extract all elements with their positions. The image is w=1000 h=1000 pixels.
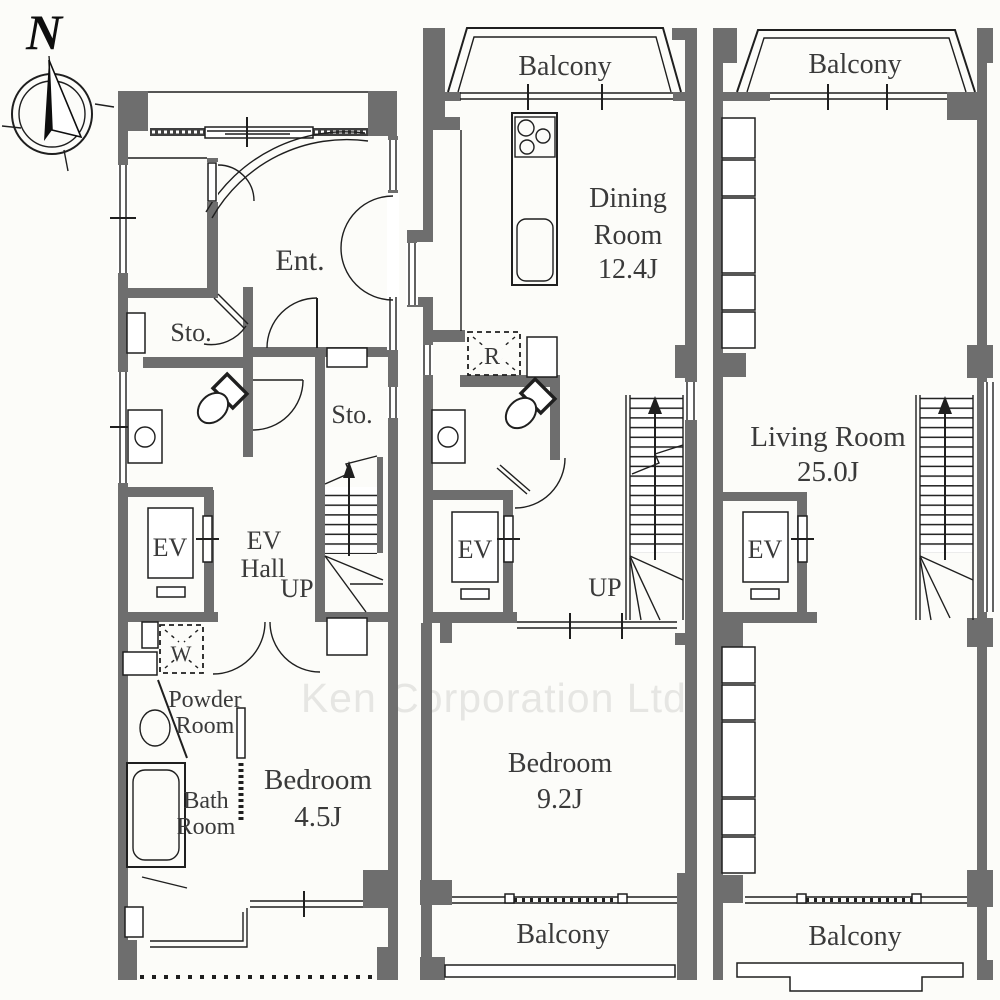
room-label-dining-2: Room — [594, 220, 663, 251]
room-label-powder-2: Room — [176, 713, 235, 739]
room-label-bath-2: Room — [177, 814, 236, 840]
floor-plan-svg: Ken Corporation Ltd. N — [0, 0, 1000, 1000]
room-label-balcony-bottom-2f: Balcony — [516, 919, 609, 950]
room-label-balcony-top-3f: Balcony — [808, 49, 901, 80]
room-label-entrance: Ent. — [275, 244, 324, 277]
washbasin-icon — [432, 410, 465, 463]
closet-icon — [527, 337, 557, 377]
label-stairs-up: UP — [280, 574, 313, 603]
watermark-text: Ken Corporation Ltd. — [301, 675, 699, 721]
room-label-storage-a: Sto. — [170, 318, 211, 347]
room-label-ev-hall-2: Hall — [241, 554, 286, 583]
room-label-powder-1: Powder — [168, 687, 241, 713]
room-label-bedroom2-1: Bedroom — [508, 748, 612, 779]
room-label-balcony-bottom-3f: Balcony — [808, 921, 901, 952]
closet-icon — [327, 348, 367, 367]
floor3-closet-column-upper — [722, 118, 755, 348]
room-label-dining-3: 12.4J — [598, 254, 658, 285]
floor-plan-page: Ken Corporation Ltd. N — [0, 0, 1000, 1000]
room-label-balcony-top-2f: Balcony — [518, 51, 611, 82]
room-label-living-2: 25.0J — [797, 456, 859, 488]
balcony-rail — [445, 965, 675, 977]
north-label: N — [25, 4, 64, 60]
room-label-bath-1: Bath — [183, 788, 228, 814]
room-label-bedroom1-2: 4.5J — [294, 801, 342, 833]
cabinet-icon — [127, 313, 145, 353]
room-label-dining-1: Dining — [589, 183, 667, 214]
room-label-bedroom1-1: Bedroom — [264, 764, 372, 796]
room-label-bedroom2-2: 9.2J — [537, 784, 583, 815]
floor3-stairwell-window — [984, 382, 996, 612]
room-label-elevator: EV — [153, 533, 188, 562]
room-label-living-1: Living Room — [750, 421, 906, 453]
floor3-closet-column-lower — [722, 647, 755, 873]
label-refrigerator: R — [484, 344, 500, 370]
sliding-door — [237, 708, 245, 758]
room-label-storage-b: Sto. — [331, 400, 372, 429]
label-stairs-up-2f: UP — [588, 573, 621, 602]
label-washer: W — [171, 641, 192, 666]
washbasin-icon — [128, 410, 162, 463]
room-label-ev-hall-1: EV — [247, 526, 282, 555]
closet-icon — [327, 618, 367, 655]
room-label-elevator-2f: EV — [458, 535, 493, 564]
room-label-elevator-3f: EV — [748, 535, 783, 564]
